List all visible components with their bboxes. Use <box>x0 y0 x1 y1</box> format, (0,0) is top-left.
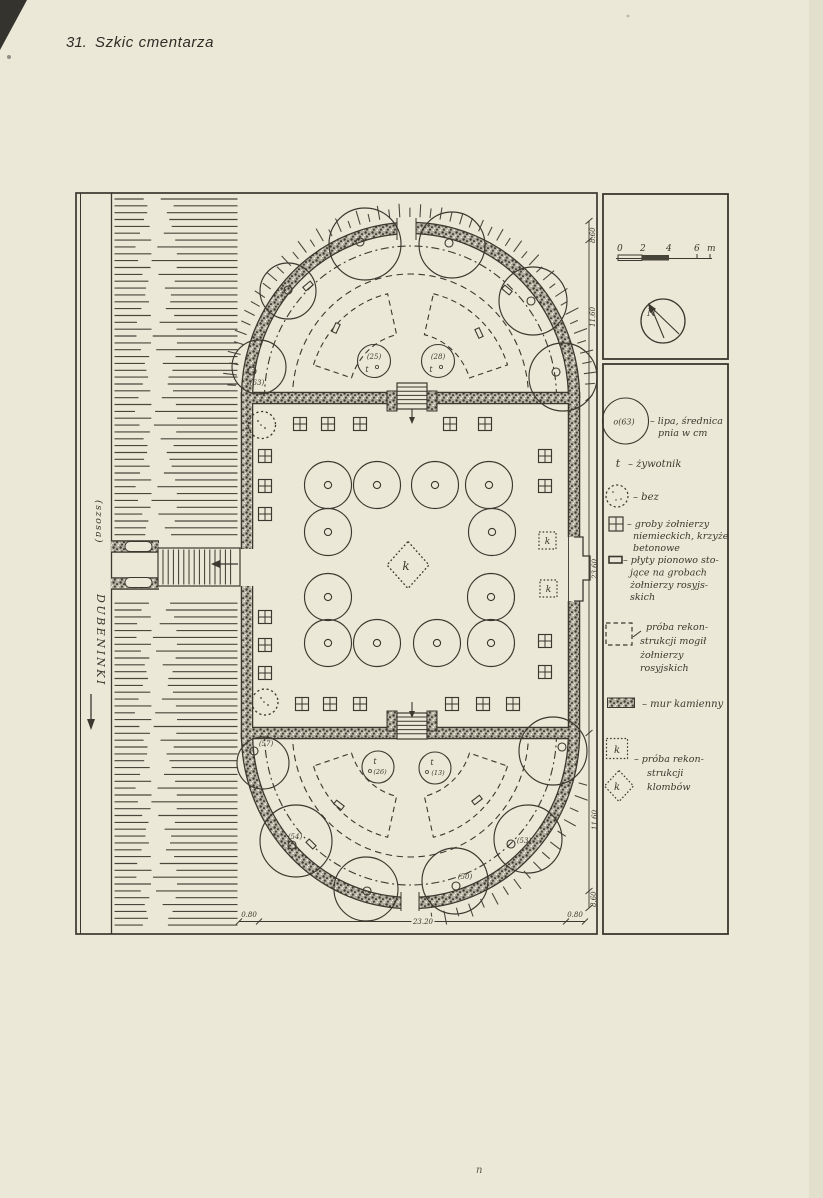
south-oval-gate <box>401 892 419 911</box>
german-grave-marker <box>539 635 552 648</box>
town-label: DUBENINKI <box>94 593 107 687</box>
legend-flowerbed-text: – próba rekon- <box>634 754 704 765</box>
german-grave-marker <box>539 480 552 493</box>
dim-value: 8.60 <box>589 227 597 243</box>
german-grave-marker <box>259 480 272 493</box>
dim-value: 11.60 <box>591 809 599 830</box>
scale-tick-label: 6 <box>694 244 700 254</box>
legend-flowerbed-text: klombów <box>647 782 690 793</box>
hachure-tick <box>488 227 492 236</box>
hachure-tick <box>277 267 284 274</box>
tree-label: (50) <box>458 873 473 881</box>
cemetery-sketch-figure: 31. Szkic cmentarza (szosa) DUBENINKI <box>0 0 823 1198</box>
legend-lime-text: – lipa, średnica <box>650 416 723 427</box>
tree-label: (26) <box>373 768 387 776</box>
legend-wall-symbol <box>608 698 635 708</box>
german-grave-marker <box>259 611 272 624</box>
scan-speck <box>7 55 11 59</box>
dim-value: 0.80 <box>241 911 257 919</box>
scan-speck <box>627 15 630 18</box>
figure-number: 31. <box>66 34 87 51</box>
compass-north-label: N <box>646 308 657 319</box>
tree-circle <box>468 574 515 621</box>
legend-lime-text: pnia w cm <box>658 428 707 439</box>
legend-flowerbed-mark: k <box>614 745 620 756</box>
flowerbed-reconstructions: k k k <box>387 532 557 597</box>
tree-circle <box>354 462 401 509</box>
scale-tick-label: 2 <box>639 244 646 254</box>
hachure-tick <box>235 330 247 334</box>
hachure-tick <box>267 273 277 281</box>
hachure-tick <box>514 879 521 889</box>
hachure-tick <box>579 783 587 785</box>
legend-grave-symbol <box>609 517 623 531</box>
hachure-tick <box>228 351 241 354</box>
hachure-tick <box>566 308 579 315</box>
scanned-page: 31. Szkic cmentarza (szosa) DUBENINKI <box>0 0 823 1198</box>
dim-value: 8.60 <box>590 891 598 907</box>
tree-circle <box>466 462 513 509</box>
hachure-tick <box>241 321 250 325</box>
hachure-tick <box>550 284 556 288</box>
hachure-tick <box>460 213 463 224</box>
german-grave-marker <box>354 698 367 711</box>
hachure-tick <box>456 908 458 917</box>
legend-grave-text: niemieckich, krzyże <box>633 531 729 542</box>
hachure-tick <box>577 341 586 344</box>
hachure-tick <box>263 283 271 289</box>
hachure-tick <box>492 893 498 904</box>
scan-corner-mark <box>0 0 27 50</box>
german-grave-marker <box>479 418 492 431</box>
hachure-tick <box>570 808 578 812</box>
tree-label: (28) <box>431 353 446 361</box>
scale-box-frame <box>603 194 728 359</box>
standing-slab <box>332 323 340 334</box>
north-court-gate <box>387 383 437 424</box>
tree-label: (63) <box>250 379 265 387</box>
thuja-mark: t <box>429 365 433 374</box>
hachure-tick <box>377 206 380 220</box>
legend-grave-reconstruction-text: próba rekon- <box>646 622 708 633</box>
legend-grave-reconstruction-text: żołnierzy <box>639 650 684 661</box>
tree-circle <box>305 574 352 621</box>
hachure-tick <box>450 212 452 222</box>
hachure-tick <box>469 218 472 227</box>
tree-circle <box>354 620 401 667</box>
legend-grave-reconstruction-symbol <box>606 623 632 645</box>
hachure-tick <box>251 301 260 306</box>
tree-circle <box>414 620 461 667</box>
tree-circle <box>412 462 459 509</box>
hachure-tick <box>550 842 560 850</box>
standing-slab <box>475 328 483 339</box>
dim-value: 23.20 <box>412 918 434 926</box>
gate-arrow-head <box>409 417 415 424</box>
tree-circle <box>305 620 352 667</box>
hachure-tick <box>497 229 503 240</box>
tree-circle <box>469 509 516 556</box>
legend-grave-reconstruction-text: rosyjskich <box>640 663 689 674</box>
hachure-tick <box>348 221 351 228</box>
legend-flowerbed-text: strukcji <box>647 768 683 779</box>
hachure-tick <box>514 241 522 252</box>
legend-lilac-symbol <box>606 485 628 507</box>
tree-label: (25) <box>367 353 382 361</box>
figure-title: Szkic cmentarza <box>95 34 214 51</box>
german-grave-marker <box>539 450 552 463</box>
german-grave-marker <box>507 698 520 711</box>
legend: o(63) – lipa, średnica pnia w cm t – żyw… <box>603 398 729 802</box>
hachure-tick <box>564 820 576 826</box>
hachure-tick <box>543 271 554 280</box>
hachure-tick <box>368 214 370 222</box>
german-grave-marker <box>259 450 272 463</box>
legend-grave-text: – groby żołnierzy <box>627 519 710 530</box>
standing-slab <box>303 281 313 291</box>
russian-graves-reconstruction <box>265 246 557 885</box>
hachure-tick <box>505 238 510 246</box>
hachure-tick <box>356 211 360 225</box>
tree-circle <box>468 620 515 667</box>
scale-bar: 0 2 4 6 m <box>616 244 716 261</box>
pencil-mark: n <box>476 1165 482 1176</box>
tree-label: (54) <box>288 833 303 841</box>
hachure-tick <box>529 255 539 265</box>
standing-slab <box>472 795 482 805</box>
hachure-tick <box>522 251 528 258</box>
east-wall-opening <box>566 537 590 601</box>
hachure-tick <box>570 320 578 323</box>
hachure-tick <box>430 208 431 218</box>
german-grave-marker <box>324 698 337 711</box>
tree-circle <box>305 462 352 509</box>
dim-value: 23.60 <box>591 558 599 580</box>
west-entrance <box>125 542 240 588</box>
hachure-tick <box>227 385 236 386</box>
tree-circle <box>260 805 332 877</box>
legend-slab-text: – płyty pionowo sto- <box>623 555 719 566</box>
legend-lilac-text: – bez <box>633 492 659 503</box>
hachure-tick <box>575 796 588 801</box>
legend-grave-text: betonowe <box>633 543 680 554</box>
hachure-tick <box>223 373 237 375</box>
hachure-tick <box>282 256 291 266</box>
dim-value: 11.60 <box>589 306 597 327</box>
courtyard-trees <box>305 462 516 667</box>
hachure-tick <box>310 240 315 247</box>
legend-wall-text: – mur kamienny <box>642 699 724 710</box>
hachure-tick <box>524 871 531 879</box>
standing-slab <box>306 839 316 849</box>
hachure-tick <box>293 252 299 259</box>
compass-rose: N <box>641 299 685 343</box>
legend-thuja-text: – żywotnik <box>628 459 681 470</box>
german-grave-marker <box>354 418 367 431</box>
german-grave-marker <box>446 698 459 711</box>
legend-slab-text: żołnierzy rosyjs- <box>629 580 708 591</box>
german-grave-marker <box>259 667 272 680</box>
german-grave-marker <box>477 698 490 711</box>
german-grave-marker <box>259 508 272 521</box>
hachure-tick <box>585 383 595 384</box>
legend-slab-text: skich <box>630 592 655 603</box>
tree-label: (13) <box>431 769 445 777</box>
scale-unit: m <box>707 244 716 254</box>
hachure-tick <box>533 862 541 870</box>
street-label: (szosa) <box>93 500 104 544</box>
german-grave-marker <box>259 639 272 652</box>
legend-grave-reconstruction-text: strukcji mogił <box>640 636 707 647</box>
road-labels: (szosa) DUBENINKI <box>87 500 107 730</box>
hachure-tick <box>298 241 306 252</box>
hachure-tick <box>399 204 400 218</box>
scale-tick-label: 4 <box>665 244 672 254</box>
flowerbed-mark: k <box>546 585 551 595</box>
german-grave-marker <box>296 698 309 711</box>
legend-lime-symbol-text: o(63) <box>613 418 634 427</box>
hachure-tick <box>503 887 508 895</box>
flowerbed-mark: k <box>545 537 550 547</box>
hachure-tick <box>244 310 254 315</box>
hachure-tick <box>542 852 550 859</box>
hachure-tick <box>582 362 591 364</box>
german-grave-marker <box>539 666 552 679</box>
thuja-mark: t <box>365 365 369 374</box>
legend-slab-text: jące na grobach <box>628 568 707 579</box>
dim-value: 0.80 <box>567 911 583 919</box>
tree-label: (57) <box>259 740 274 748</box>
standing-slab <box>334 800 344 810</box>
direction-arrow-head <box>87 719 95 730</box>
thuja-mark: t <box>373 757 377 766</box>
page-edge-shade <box>809 0 823 1198</box>
scale-tick-label: 0 <box>617 244 623 254</box>
tree-label: (53) <box>517 837 532 845</box>
legend-box-frame <box>603 364 728 934</box>
hachure-tick <box>584 372 597 374</box>
tree-circle <box>305 509 352 556</box>
hachure-tick <box>316 229 323 242</box>
legend-flowerbed-mark: k <box>614 782 620 793</box>
hachure-tick <box>420 204 421 217</box>
hachure-tick <box>574 329 587 334</box>
thuja-mark: t <box>430 758 434 767</box>
legend-thuja-symbol: t <box>616 457 621 470</box>
legend-slab-symbol <box>609 557 622 564</box>
german-grave-marker <box>444 418 457 431</box>
flowerbed-mark: k <box>402 559 409 573</box>
german-grave-marker <box>294 418 307 431</box>
german-grave-marker <box>322 418 335 431</box>
